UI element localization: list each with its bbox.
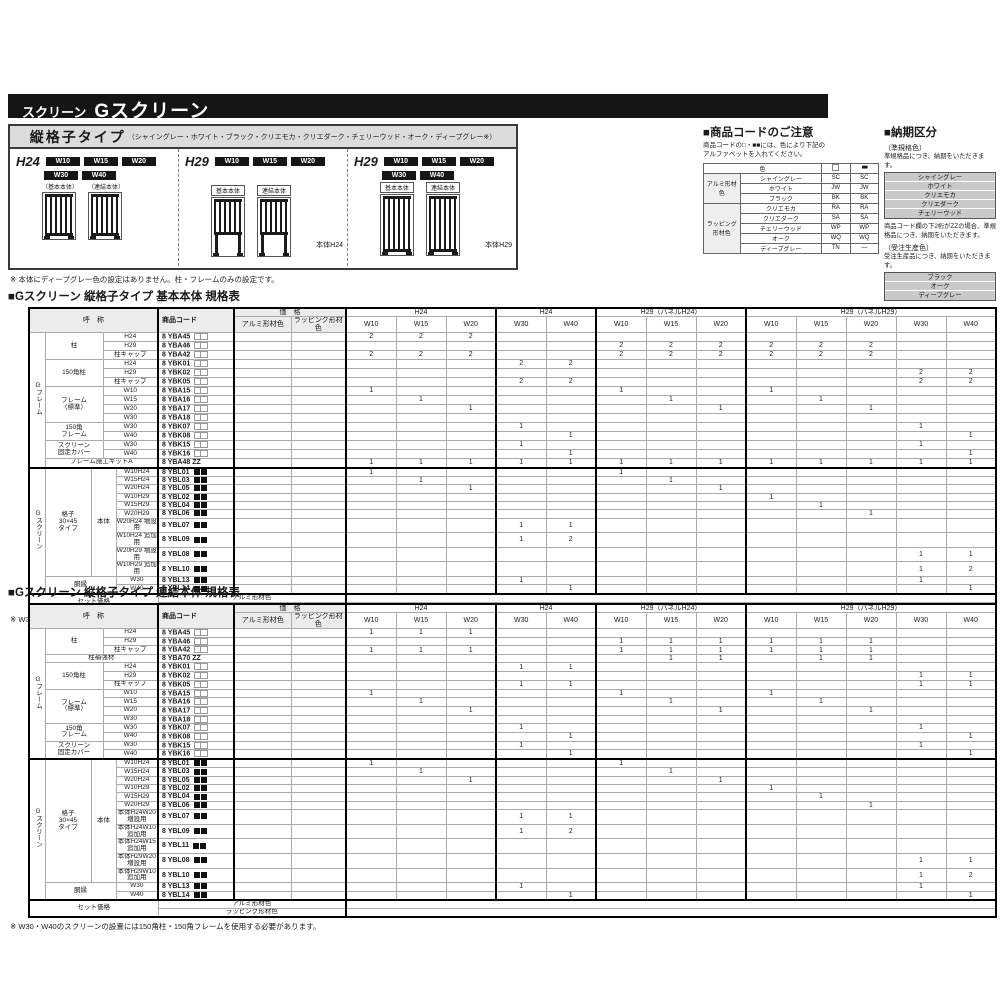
qty-cell xyxy=(346,715,396,724)
qty-cell xyxy=(746,732,796,741)
row-label: H29 xyxy=(103,342,158,351)
product-code: 8 YBA46 xyxy=(158,637,234,646)
qty-cell xyxy=(396,501,446,509)
qty-cell xyxy=(946,663,996,672)
qty-cell xyxy=(596,476,646,484)
qty-cell xyxy=(796,759,846,768)
code-fill: JW xyxy=(850,183,879,193)
qty-cell xyxy=(696,518,746,533)
row-label: W15 xyxy=(103,698,158,707)
qty-cell: 1 xyxy=(496,883,546,891)
qty-cell xyxy=(696,785,746,793)
price-cell-wrap xyxy=(291,405,346,414)
price-cell-alumi xyxy=(234,646,291,655)
qty-cell xyxy=(846,689,896,698)
price-cell-alumi xyxy=(234,655,291,663)
qty-cell xyxy=(496,414,546,423)
qty-cell xyxy=(596,493,646,501)
row-label: 150角 フレーム xyxy=(45,724,103,741)
filled-code-boxes xyxy=(194,872,208,878)
filled-code-boxes xyxy=(194,502,208,508)
open-code-boxes xyxy=(194,333,208,340)
qty-cell xyxy=(546,501,596,509)
product-code-text: 8 YBA45 xyxy=(162,629,190,636)
price-cell-wrap xyxy=(291,724,346,733)
qty-cell xyxy=(496,485,546,493)
qty-cell xyxy=(596,672,646,681)
qty-cell: 2 xyxy=(646,342,696,351)
price-cell-wrap xyxy=(291,485,346,493)
qty-cell xyxy=(646,501,696,509)
open-code-boxes xyxy=(194,450,208,457)
qty-cell xyxy=(796,441,846,450)
price-cell-alumi xyxy=(234,883,291,891)
qty-cell: 1 xyxy=(646,396,696,405)
qty-cell xyxy=(746,680,796,689)
qty-cell xyxy=(746,450,796,459)
price-cell-wrap xyxy=(291,518,346,533)
row-label: 柱 xyxy=(45,333,103,360)
product-code-text: 8 YBK01 xyxy=(162,664,190,671)
qty-cell xyxy=(846,468,896,477)
qty-cell: 1 xyxy=(846,510,896,518)
price-cell-alumi xyxy=(234,698,291,707)
qty-cell xyxy=(796,785,846,793)
qty-cell xyxy=(496,750,546,759)
open-code-boxes xyxy=(194,423,208,430)
qty-cell xyxy=(696,396,746,405)
price-cell-wrap xyxy=(291,698,346,707)
qty-cell xyxy=(546,839,596,854)
qty-cell xyxy=(696,824,746,839)
screen-panel-illustration xyxy=(42,192,76,240)
code-col-header: 商品コード xyxy=(158,604,234,629)
filled-code-boxes xyxy=(194,769,208,775)
price-cell-alumi xyxy=(234,810,291,825)
qty-cell xyxy=(696,501,746,509)
qty-cell xyxy=(746,432,796,441)
qty-cell xyxy=(896,501,946,509)
qty-cell xyxy=(796,432,846,441)
row-label: 本体H24W10 追加用 xyxy=(116,824,158,839)
qty-cell xyxy=(796,750,846,759)
body-height-note: 本体H24 xyxy=(316,240,343,250)
qty-cell xyxy=(446,562,496,577)
screen-panel-row xyxy=(42,192,176,240)
size-col-header: W10 xyxy=(746,613,796,629)
color-name: クリエモカ xyxy=(740,203,821,213)
row-label: W10H29 追加用 xyxy=(116,562,158,577)
qty-cell xyxy=(396,801,446,809)
qty-cell xyxy=(746,378,796,387)
qty-cell xyxy=(746,663,796,672)
product-code-text: 8 YBL06 xyxy=(162,510,190,517)
price-cell-wrap xyxy=(291,378,346,387)
filled-code-boxes xyxy=(194,777,208,783)
product-code: 8 YBL11 xyxy=(158,839,234,854)
qty-cell xyxy=(446,715,496,724)
qty-cell xyxy=(846,369,896,378)
row-label: フレーム （標準） xyxy=(45,689,103,724)
qty-cell: 1 xyxy=(346,459,396,468)
qty-cell xyxy=(946,396,996,405)
grille-stripes xyxy=(429,196,457,252)
qty-cell: 2 xyxy=(796,351,846,360)
qty-cell xyxy=(646,468,696,477)
qty-cell: 1 xyxy=(896,459,946,468)
price-col-header: 価 格 xyxy=(234,604,346,613)
qty-cell xyxy=(796,360,846,369)
qty-cell xyxy=(696,562,746,577)
qty-cell xyxy=(696,715,746,724)
product-code: 8 YBK16 xyxy=(158,750,234,759)
panel-feet xyxy=(381,252,413,255)
qty-cell xyxy=(396,369,446,378)
qty-cell: 1 xyxy=(546,518,596,533)
qty-cell: 1 xyxy=(546,450,596,459)
price-cell-alumi xyxy=(234,824,291,839)
type-section: H24W10W15W20W30W40（基本本体）（連結本体） xyxy=(10,149,178,266)
price-cell-alumi xyxy=(234,839,291,854)
qty-cell xyxy=(546,333,596,342)
open-code-boxes xyxy=(194,369,208,376)
qty-cell: 1 xyxy=(846,706,896,715)
qty-cell xyxy=(596,655,646,663)
open-code-boxes xyxy=(194,742,208,749)
qty-cell xyxy=(946,441,996,450)
qty-cell: 1 xyxy=(446,405,496,414)
qty-cell xyxy=(546,868,596,883)
price-sub-header: アルミ形材色 xyxy=(234,613,291,629)
qty-cell: 1 xyxy=(346,629,396,638)
delivery-text2: 受注生産品につき、納期をいただきます。 xyxy=(884,253,996,270)
qty-cell xyxy=(896,663,946,672)
qty-cell xyxy=(396,378,446,387)
qty-cell xyxy=(596,776,646,784)
row-label: W30 xyxy=(103,724,158,733)
set-price-material: アルミ形材色 xyxy=(158,900,346,908)
qty-cell xyxy=(396,853,446,868)
product-code-text: 8 YBL05 xyxy=(162,777,190,784)
qty-cell: 2 xyxy=(746,342,796,351)
qty-cell xyxy=(846,824,896,839)
product-code-text: 8 YBA17 xyxy=(162,406,190,413)
qty-cell xyxy=(846,533,896,548)
row-label: フレーム施工キットA xyxy=(45,459,158,468)
size-group-header: H29（パネルH24） xyxy=(596,604,746,613)
qty-cell: 1 xyxy=(346,646,396,655)
qty-cell xyxy=(846,663,896,672)
product-code: 8 YBA17 xyxy=(158,706,234,715)
product-code: 8 YBK05 xyxy=(158,680,234,689)
open-code-boxes xyxy=(194,378,208,385)
qty-cell: 1 xyxy=(446,485,496,493)
qty-cell xyxy=(596,629,646,638)
width-tag: W20 xyxy=(460,157,494,166)
size-group-header: H24 xyxy=(496,604,596,613)
qty-cell xyxy=(496,672,546,681)
size-col-header: W30 xyxy=(896,613,946,629)
row-label: 格子 30×45 タイプ xyxy=(45,759,91,883)
qty-cell xyxy=(946,698,996,707)
price-cell-wrap xyxy=(291,672,346,681)
qty-cell xyxy=(946,689,996,698)
size-col-header: W20 xyxy=(846,317,896,333)
color-name: オーク xyxy=(740,233,821,243)
qty-cell: 1 xyxy=(446,646,496,655)
price-cell-wrap xyxy=(291,414,346,423)
qty-cell xyxy=(946,510,996,518)
qty-cell xyxy=(346,485,396,493)
qty-cell xyxy=(596,432,646,441)
product-code: 8 YBA18 xyxy=(158,414,234,423)
price-cell-wrap xyxy=(291,432,346,441)
size-col-header: W20 xyxy=(846,613,896,629)
qty-cell xyxy=(446,759,496,768)
qty-cell xyxy=(846,387,896,396)
qty-cell xyxy=(396,432,446,441)
type-title-colors: （シャイングレー・ホワイト・ブラック・クリエモカ・クリエダーク・チェリーウッド・… xyxy=(128,132,497,142)
qty-cell xyxy=(746,485,796,493)
row-label: W30 xyxy=(103,441,158,450)
size-col-header: W40 xyxy=(946,613,996,629)
qty-cell xyxy=(496,891,546,900)
qty-cell xyxy=(696,750,746,759)
qty-cell xyxy=(646,405,696,414)
qty-cell: 2 xyxy=(946,369,996,378)
size-col-header: W40 xyxy=(546,317,596,333)
qty-cell: 1 xyxy=(346,387,396,396)
qty-cell xyxy=(846,501,896,509)
product-code-text: 8 YBL10 xyxy=(162,566,190,573)
spec-table-block-basic: ■Gスクリーン 縦格子タイプ 基本本体 規格表 呼 称商品コード価 格H24H2… xyxy=(8,288,997,625)
qty-cell: 1 xyxy=(896,868,946,883)
qty-cell xyxy=(646,689,696,698)
qty-cell: 1 xyxy=(646,768,696,776)
name-col-header: 呼 称 xyxy=(29,604,158,629)
qty-cell: 1 xyxy=(846,459,896,468)
qty-cell xyxy=(496,801,546,809)
qty-cell xyxy=(396,793,446,801)
delivery-text1: 準規格品につき、納期をいただきます。 xyxy=(884,153,996,170)
qty-cell xyxy=(646,741,696,750)
product-code-text: 8 YBK15 xyxy=(162,442,190,449)
width-tag: W15 xyxy=(422,157,456,166)
qty-cell xyxy=(346,396,396,405)
qty-cell: 1 xyxy=(946,547,996,562)
qty-cell: 1 xyxy=(396,768,446,776)
qty-cell xyxy=(846,793,896,801)
qty-cell xyxy=(796,450,846,459)
qty-cell xyxy=(346,423,396,432)
qty-cell xyxy=(946,785,996,793)
qty-cell: 1 xyxy=(596,759,646,768)
delivery-color: クリエモカ xyxy=(885,191,995,200)
price-cell-wrap xyxy=(291,750,346,759)
qty-cell xyxy=(346,824,396,839)
open-code-boxes xyxy=(194,733,208,740)
qty-cell xyxy=(596,801,646,809)
row-label: Gフレーム xyxy=(29,629,45,759)
qty-cell xyxy=(346,369,396,378)
product-code-text: 8 YBA16 xyxy=(162,699,190,706)
qty-cell xyxy=(596,547,646,562)
delivery-color: クリエダーク xyxy=(885,200,995,209)
qty-cell xyxy=(896,732,946,741)
qty-cell xyxy=(496,493,546,501)
filled-code-boxes xyxy=(194,892,208,898)
row-label: W15H24 xyxy=(116,768,158,776)
price-cell-wrap xyxy=(291,562,346,577)
qty-cell xyxy=(746,824,796,839)
qty-cell xyxy=(796,663,846,672)
qty-cell xyxy=(946,824,996,839)
row-label: W20H29 増設用 xyxy=(116,547,158,562)
code-table-row: ラッピング形材色クリエモカRARA xyxy=(704,203,879,213)
vertical-label-text: Gフレーム xyxy=(34,676,41,709)
filled-code-boxes xyxy=(193,843,207,849)
color-name: シャイングレー xyxy=(740,173,821,183)
qty-cell xyxy=(946,360,996,369)
qty-cell xyxy=(496,501,546,509)
qty-cell xyxy=(596,680,646,689)
product-code: 8 YBL02 xyxy=(158,785,234,793)
qty-cell xyxy=(446,493,496,501)
qty-cell xyxy=(746,868,796,883)
product-code: 8 YBA16 xyxy=(158,698,234,707)
qty-cell xyxy=(696,810,746,825)
product-code: 8 YBK01 xyxy=(158,663,234,672)
qty-cell: 1 xyxy=(496,423,546,432)
qty-cell: 2 xyxy=(546,378,596,387)
qty-cell xyxy=(346,360,396,369)
qty-cell xyxy=(446,547,496,562)
qty-cell: 2 xyxy=(896,378,946,387)
price-cell-alumi xyxy=(234,459,291,468)
size-col-header: W15 xyxy=(396,613,446,629)
product-code-text: 8 YBL06 xyxy=(162,802,190,809)
qty-cell xyxy=(746,672,796,681)
row-label: W40 xyxy=(116,891,158,900)
width-tag: W20 xyxy=(291,157,325,166)
qty-cell xyxy=(946,518,996,533)
price-cell-alumi xyxy=(234,768,291,776)
price-cell-alumi xyxy=(234,396,291,405)
qty-cell xyxy=(946,423,996,432)
qty-cell xyxy=(846,680,896,689)
qty-cell xyxy=(746,853,796,868)
set-price-label: セット価格 xyxy=(29,900,158,917)
row-label: Gスクリーン xyxy=(29,468,45,594)
qty-cell xyxy=(696,689,746,698)
product-code-text: 8 YBK08 xyxy=(162,433,190,440)
qty-cell xyxy=(646,423,696,432)
qty-cell xyxy=(846,750,896,759)
qty-cell xyxy=(396,510,446,518)
filled-code-boxes xyxy=(194,522,208,528)
price-cell-wrap xyxy=(291,476,346,484)
open-code-boxes xyxy=(194,629,208,636)
qty-cell xyxy=(446,672,496,681)
code-open: BK xyxy=(822,193,850,203)
qty-cell xyxy=(796,801,846,809)
qty-cell xyxy=(396,776,446,784)
qty-cell xyxy=(796,732,846,741)
qty-cell xyxy=(446,839,496,854)
qty-cell xyxy=(596,423,646,432)
qty-cell xyxy=(796,518,846,533)
qty-cell xyxy=(646,485,696,493)
product-code: 8 YBL09 xyxy=(158,824,234,839)
qty-cell: 2 xyxy=(346,333,396,342)
qty-cell: 2 xyxy=(546,360,596,369)
code-open: WQ xyxy=(822,233,850,243)
qty-cell: 1 xyxy=(546,891,596,900)
qty-cell xyxy=(846,450,896,459)
qty-cell xyxy=(546,493,596,501)
qty-cell: 2 xyxy=(496,378,546,387)
qty-cell xyxy=(496,432,546,441)
qty-cell xyxy=(546,646,596,655)
qty-cell xyxy=(946,839,996,854)
qty-cell xyxy=(796,493,846,501)
qty-cell xyxy=(646,562,696,577)
qty-cell xyxy=(446,750,496,759)
filled-code-boxes xyxy=(194,469,208,475)
qty-cell xyxy=(396,493,446,501)
qty-cell xyxy=(496,698,546,707)
row-label: H24 xyxy=(103,360,158,369)
qty-cell xyxy=(796,378,846,387)
qty-cell xyxy=(546,485,596,493)
qty-cell xyxy=(946,485,996,493)
qty-cell xyxy=(846,741,896,750)
product-code: 8 YBA17 xyxy=(158,405,234,414)
size-col-header: W30 xyxy=(496,317,546,333)
qty-cell: 1 xyxy=(396,629,446,638)
qty-cell xyxy=(696,853,746,868)
color-name: ホワイト xyxy=(740,183,821,193)
qty-cell xyxy=(696,768,746,776)
panel-caption: 基本本体 xyxy=(380,182,414,193)
qty-cell xyxy=(446,824,496,839)
price-cell-alumi xyxy=(234,741,291,750)
qty-cell: 1 xyxy=(946,891,996,900)
screen-panel-illustration xyxy=(211,197,245,257)
qty-cell xyxy=(496,868,546,883)
foot xyxy=(428,252,434,255)
color-name: チェリーウッド xyxy=(740,223,821,233)
row-label: スクリーン 固定カバー xyxy=(45,741,103,759)
qty-cell xyxy=(946,724,996,733)
qty-cell xyxy=(796,768,846,776)
foot xyxy=(382,252,388,255)
qty-cell xyxy=(546,629,596,638)
qty-cell xyxy=(796,387,846,396)
qty-cell xyxy=(446,501,496,509)
product-code-text: 8 YBK16 xyxy=(162,751,190,758)
filled-code-boxes xyxy=(194,537,208,543)
qty-cell xyxy=(846,785,896,793)
qty-cell xyxy=(896,839,946,854)
price-cell-alumi xyxy=(234,776,291,784)
qty-cell: 2 xyxy=(746,351,796,360)
qty-cell xyxy=(346,680,396,689)
product-code-text: 8 YBL01 xyxy=(162,469,190,476)
qty-cell xyxy=(496,468,546,477)
product-code: 8 YBA15 xyxy=(158,387,234,396)
qty-cell xyxy=(646,715,696,724)
